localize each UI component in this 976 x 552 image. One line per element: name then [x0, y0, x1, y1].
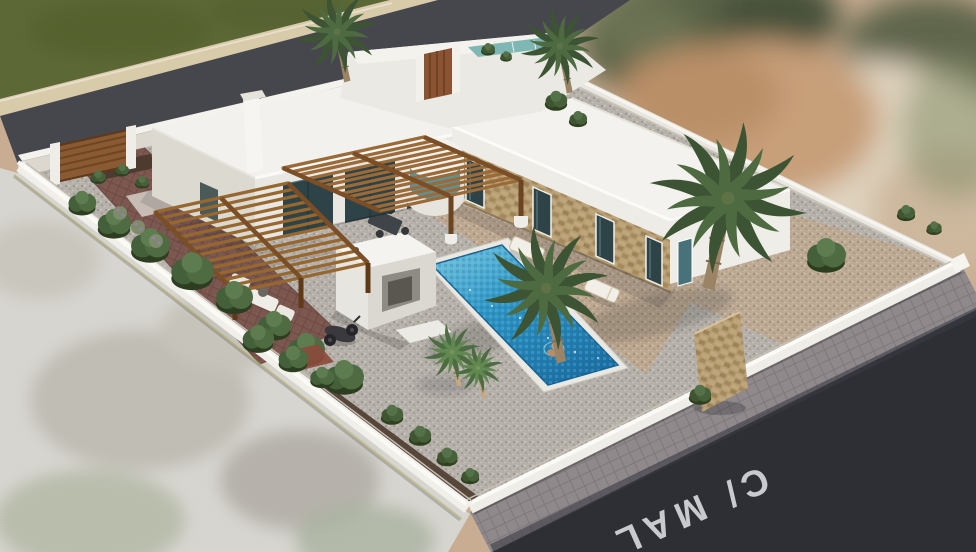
end-wall-window — [678, 238, 692, 286]
entrance-door — [416, 46, 460, 102]
villa-aerial-render: C/ MAL — [0, 0, 976, 552]
